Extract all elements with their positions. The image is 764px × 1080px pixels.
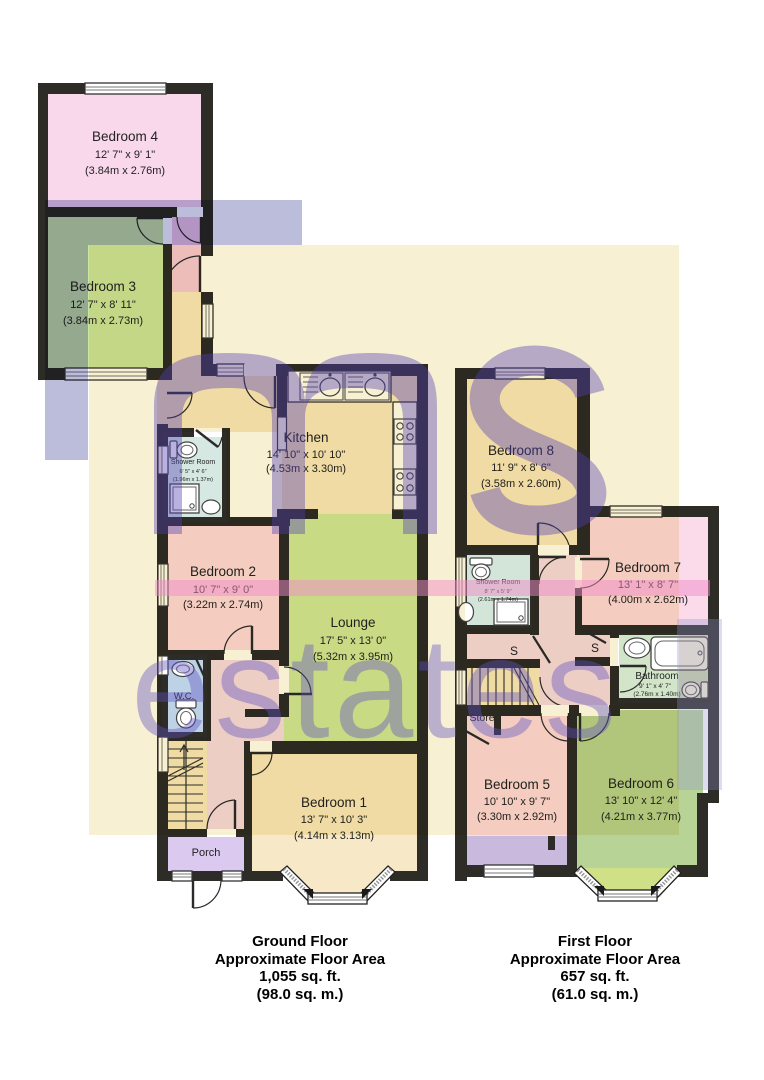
svg-text:9' 1" x 4' 7": 9' 1" x 4' 7" [639, 683, 672, 690]
svg-text:12' 7" x 9' 1": 12' 7" x 9' 1" [95, 149, 155, 161]
svg-text:1,055 sq. ft.: 1,055 sq. ft. [259, 968, 341, 985]
svg-text:(3.84m x 2.76m): (3.84m x 2.76m) [85, 165, 165, 177]
svg-text:Bathroom: Bathroom [635, 671, 678, 682]
svg-text:First Floor: First Floor [558, 933, 632, 950]
svg-text:Approximate Floor Area: Approximate Floor Area [510, 951, 681, 968]
svg-text:6' 5" x 4' 6": 6' 5" x 4' 6" [179, 469, 206, 475]
svg-text:Bedroom 4: Bedroom 4 [92, 129, 159, 144]
svg-text:Approximate Floor Area: Approximate Floor Area [215, 951, 386, 968]
svg-text:(2.61m x 1.74m): (2.61m x 1.74m) [478, 597, 518, 603]
svg-text:(98.0 sq. m.): (98.0 sq. m.) [257, 986, 344, 1003]
svg-text:estates: estates [131, 609, 620, 768]
svg-text:Porch: Porch [192, 847, 221, 859]
svg-text:Ground Floor: Ground Floor [252, 933, 348, 950]
svg-text:(61.0 sq. m.): (61.0 sq. m.) [552, 986, 639, 1003]
svg-text:(2.76m x 1.40m): (2.76m x 1.40m) [633, 691, 680, 698]
svg-text:657 sq. ft.: 657 sq. ft. [560, 968, 629, 985]
